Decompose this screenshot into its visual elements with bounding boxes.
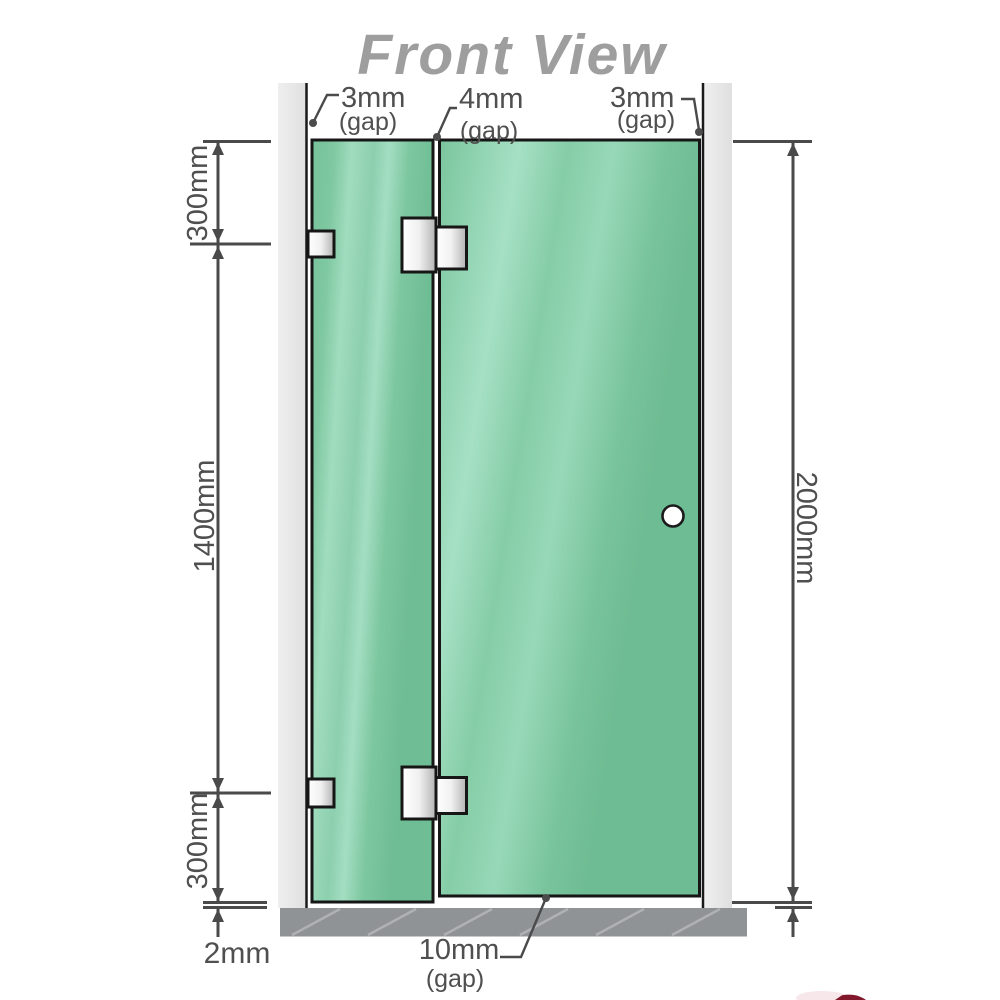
label-gap-top-middle: 4mm	[459, 83, 523, 115]
dim-left-top: 300mm	[182, 145, 214, 242]
dim-left-bottom: 300mm	[182, 793, 214, 890]
dim-left-middle: 1400mm	[189, 460, 221, 573]
label-gap-top-left-sub: (gap)	[339, 108, 397, 136]
hinge-top	[402, 218, 467, 272]
floor	[280, 908, 747, 937]
dim-right-overall: 2000mm	[790, 472, 822, 585]
label-floor-clearance: 2mm	[204, 937, 271, 970]
wall-bracket-top	[308, 231, 334, 257]
right-wall	[704, 83, 732, 908]
front-view-diagram: Front View	[0, 0, 1000, 1000]
label-gap-bottom-sub: (gap)	[426, 965, 484, 993]
wall-bracket-bottom	[308, 779, 334, 807]
door-glass-panel	[440, 140, 700, 896]
label-gap-top-right-sub: (gap)	[617, 106, 675, 134]
left-wall	[278, 83, 307, 908]
corner-red-mark	[796, 991, 866, 1000]
page-title: Front View	[357, 23, 668, 87]
label-gap-top-middle-sub: (gap)	[460, 117, 518, 145]
shower-screen-drawing: Front View	[0, 0, 1000, 1000]
label-gap-bottom: 10mm	[419, 934, 500, 966]
door-knob	[663, 506, 684, 527]
